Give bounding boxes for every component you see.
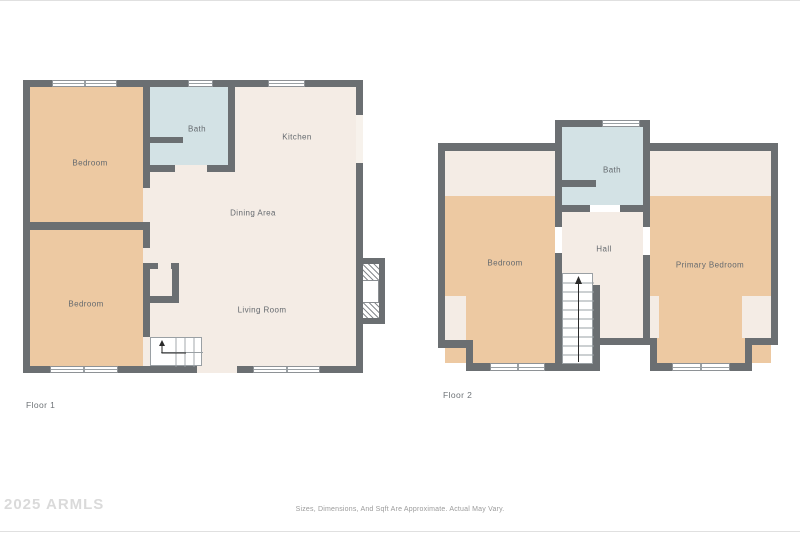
fireplace-firebox xyxy=(361,280,379,303)
label-living: Living Room xyxy=(238,306,287,315)
wall xyxy=(150,137,183,143)
knee-wall-primary-left xyxy=(650,296,659,338)
label-primary-bedroom: Primary Bedroom xyxy=(676,261,744,270)
wall xyxy=(438,143,445,348)
wall xyxy=(150,263,158,269)
wall xyxy=(643,255,650,345)
wall xyxy=(555,205,590,212)
label-bedroom-top: Bedroom xyxy=(72,159,107,168)
wall xyxy=(593,285,600,371)
wall xyxy=(23,222,150,230)
knee-wall-right xyxy=(650,151,771,196)
label-bath: Bath xyxy=(188,125,206,134)
floorplan-canvas: Bedroom Bedroom Bath Kitchen Dining Area… xyxy=(0,0,800,533)
stairs-treads xyxy=(151,338,203,367)
label-bath2: Bath xyxy=(603,166,621,175)
fireplace-inner xyxy=(361,264,379,318)
stairs-floor1 xyxy=(150,337,202,366)
room-bedroom-bottom xyxy=(30,230,143,366)
knee-wall-primary-right xyxy=(742,296,771,338)
window xyxy=(672,363,730,371)
label-dining: Dining Area xyxy=(230,209,276,218)
label-bedroom: Bedroom xyxy=(487,259,522,268)
page-top-border xyxy=(0,0,800,1)
wall xyxy=(771,143,778,345)
label-hall: Hall xyxy=(596,245,611,254)
wall xyxy=(143,222,150,248)
wall xyxy=(143,87,150,188)
window xyxy=(253,366,320,373)
wall xyxy=(745,338,778,345)
window xyxy=(188,80,213,87)
stairs-floor2 xyxy=(562,273,593,364)
fireplace-hatch-bottom xyxy=(361,302,379,318)
wall xyxy=(620,205,650,212)
floor1-caption: Floor 1 xyxy=(26,400,55,410)
disclaimer-text: Sizes, Dimensions, And Sqft Are Approxim… xyxy=(0,506,800,513)
window xyxy=(268,80,305,87)
window xyxy=(490,363,545,371)
floor2-caption: Floor 2 xyxy=(443,390,472,400)
knee-wall-left-corner xyxy=(445,296,466,340)
wall xyxy=(143,296,179,303)
wall xyxy=(593,338,650,345)
page-bottom-border xyxy=(0,531,800,532)
room-bedroom-top xyxy=(30,87,143,222)
wall xyxy=(150,165,175,172)
entry-door-opening xyxy=(197,366,237,373)
right-wall-opening xyxy=(356,115,363,163)
wall xyxy=(562,180,596,187)
label-bedroom-bottom: Bedroom xyxy=(68,300,103,309)
wall xyxy=(555,253,562,371)
label-kitchen: Kitchen xyxy=(282,133,311,142)
knee-wall-left xyxy=(445,151,555,196)
window xyxy=(50,366,118,373)
stairs-treads xyxy=(563,274,594,365)
wall xyxy=(438,143,555,151)
wall xyxy=(650,143,778,151)
fireplace-hatch-top xyxy=(361,264,379,280)
floor1-plan: Bedroom Bedroom Bath Kitchen Dining Area… xyxy=(23,80,363,373)
floor2-plan: Bedroom Bath Hall Primary Bedroom xyxy=(438,120,778,377)
window xyxy=(602,120,640,127)
wall xyxy=(228,87,235,172)
window xyxy=(52,80,117,87)
